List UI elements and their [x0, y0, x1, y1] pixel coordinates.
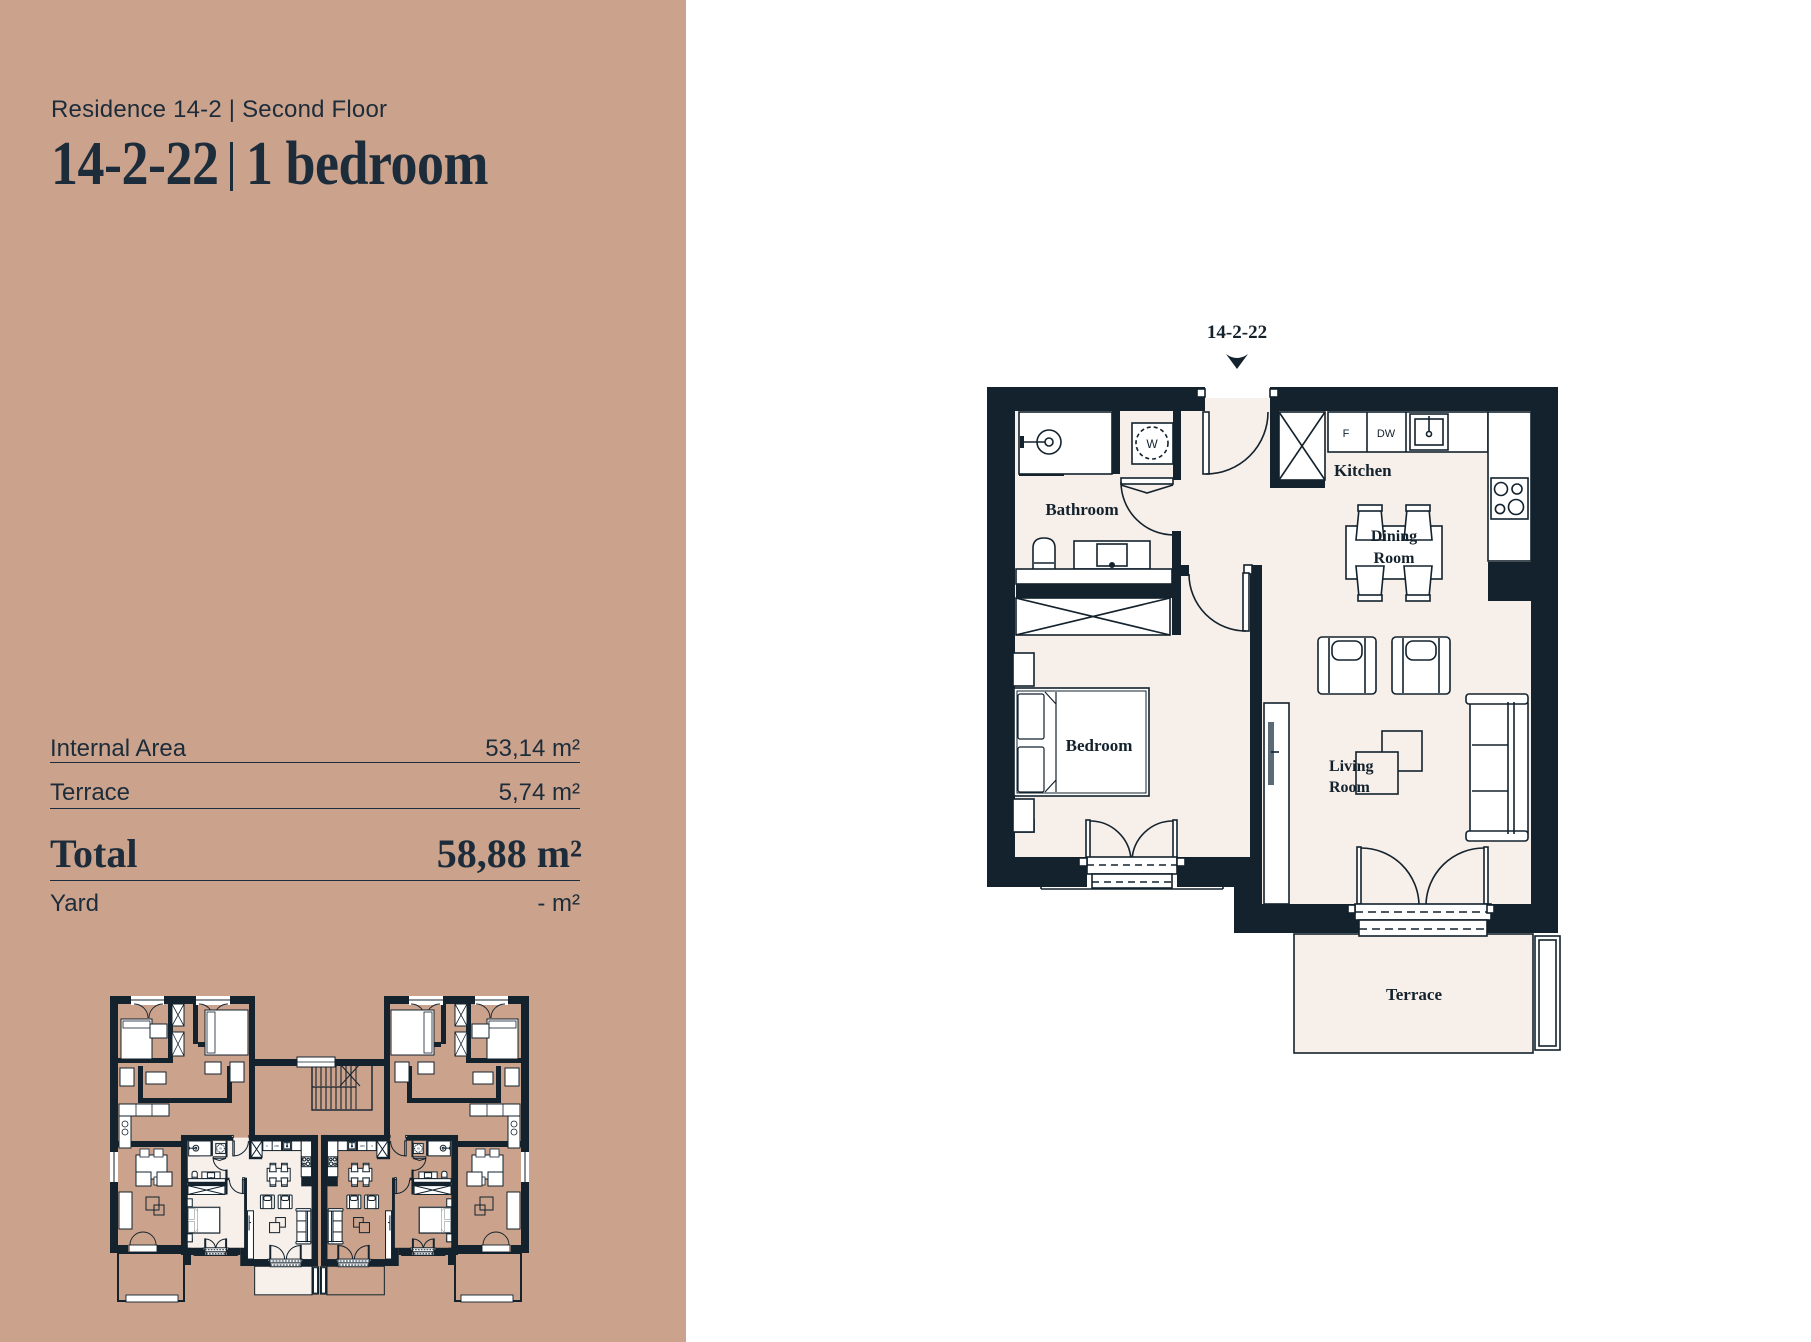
svg-text:DW: DW [1377, 428, 1396, 440]
svg-text:W: W [1146, 437, 1158, 451]
svg-text:Room: Room [1329, 779, 1371, 796]
svg-text:Dining: Dining [1371, 528, 1417, 545]
svg-text:Bedroom: Bedroom [1066, 736, 1133, 755]
svg-text:Kitchen: Kitchen [1334, 461, 1392, 480]
svg-text:Room: Room [1374, 550, 1416, 567]
svg-text:14-2-22: 14-2-22 [1207, 322, 1267, 343]
svg-text:Bathroom: Bathroom [1045, 500, 1118, 519]
svg-text:F: F [1343, 428, 1350, 440]
svg-text:Living: Living [1329, 758, 1373, 775]
svg-text:Terrace: Terrace [1386, 985, 1442, 1004]
